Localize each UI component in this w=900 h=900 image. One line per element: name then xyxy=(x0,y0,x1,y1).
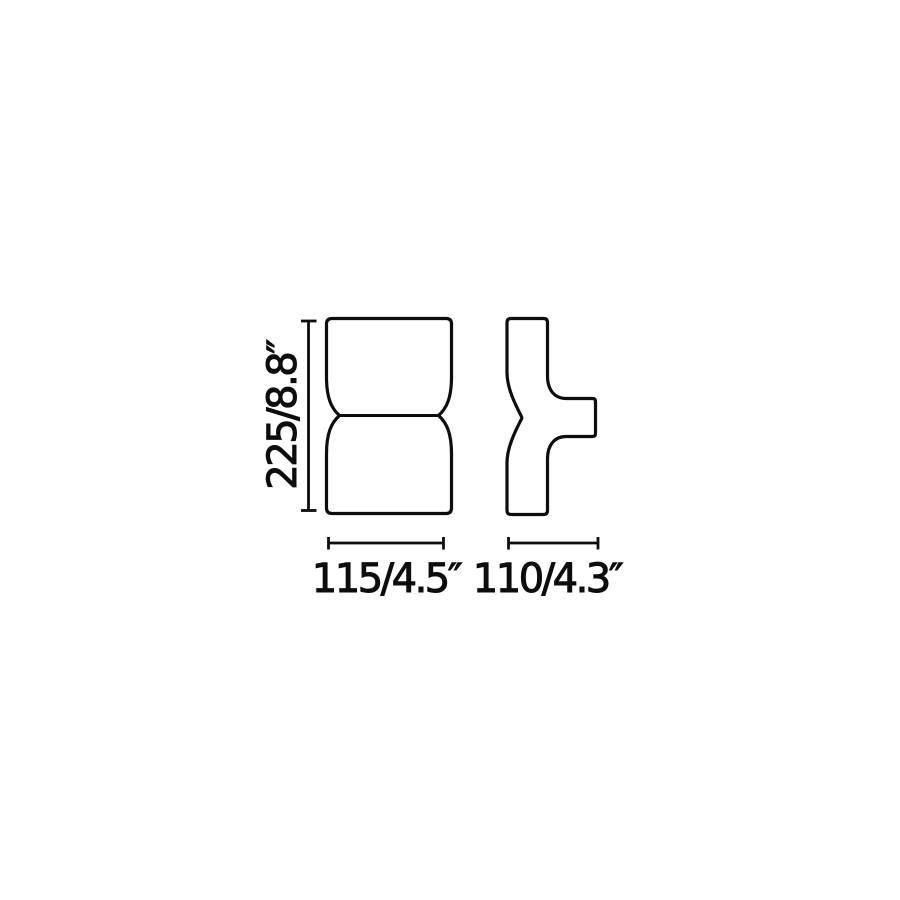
height-dimension-label: 225/8.8″ xyxy=(260,340,306,490)
front-view xyxy=(327,319,452,514)
front-width-dimension-label: 115/4.5″ xyxy=(312,556,462,602)
side-depth-dimension-label: 110/4.3″ xyxy=(473,556,623,602)
side-depth-dimension: 110/4.3″ xyxy=(473,537,623,602)
dimension-drawing-page: 225/8.8″ 115/4.5″ 110/4.3″ xyxy=(0,0,900,900)
side-profile-view xyxy=(507,319,596,515)
side-profile-outline xyxy=(507,319,596,515)
height-dimension: 225/8.8″ xyxy=(260,321,317,511)
product-dimension-diagram: 225/8.8″ 115/4.5″ 110/4.3″ xyxy=(0,0,900,900)
front-width-dimension: 115/4.5″ xyxy=(312,537,462,602)
